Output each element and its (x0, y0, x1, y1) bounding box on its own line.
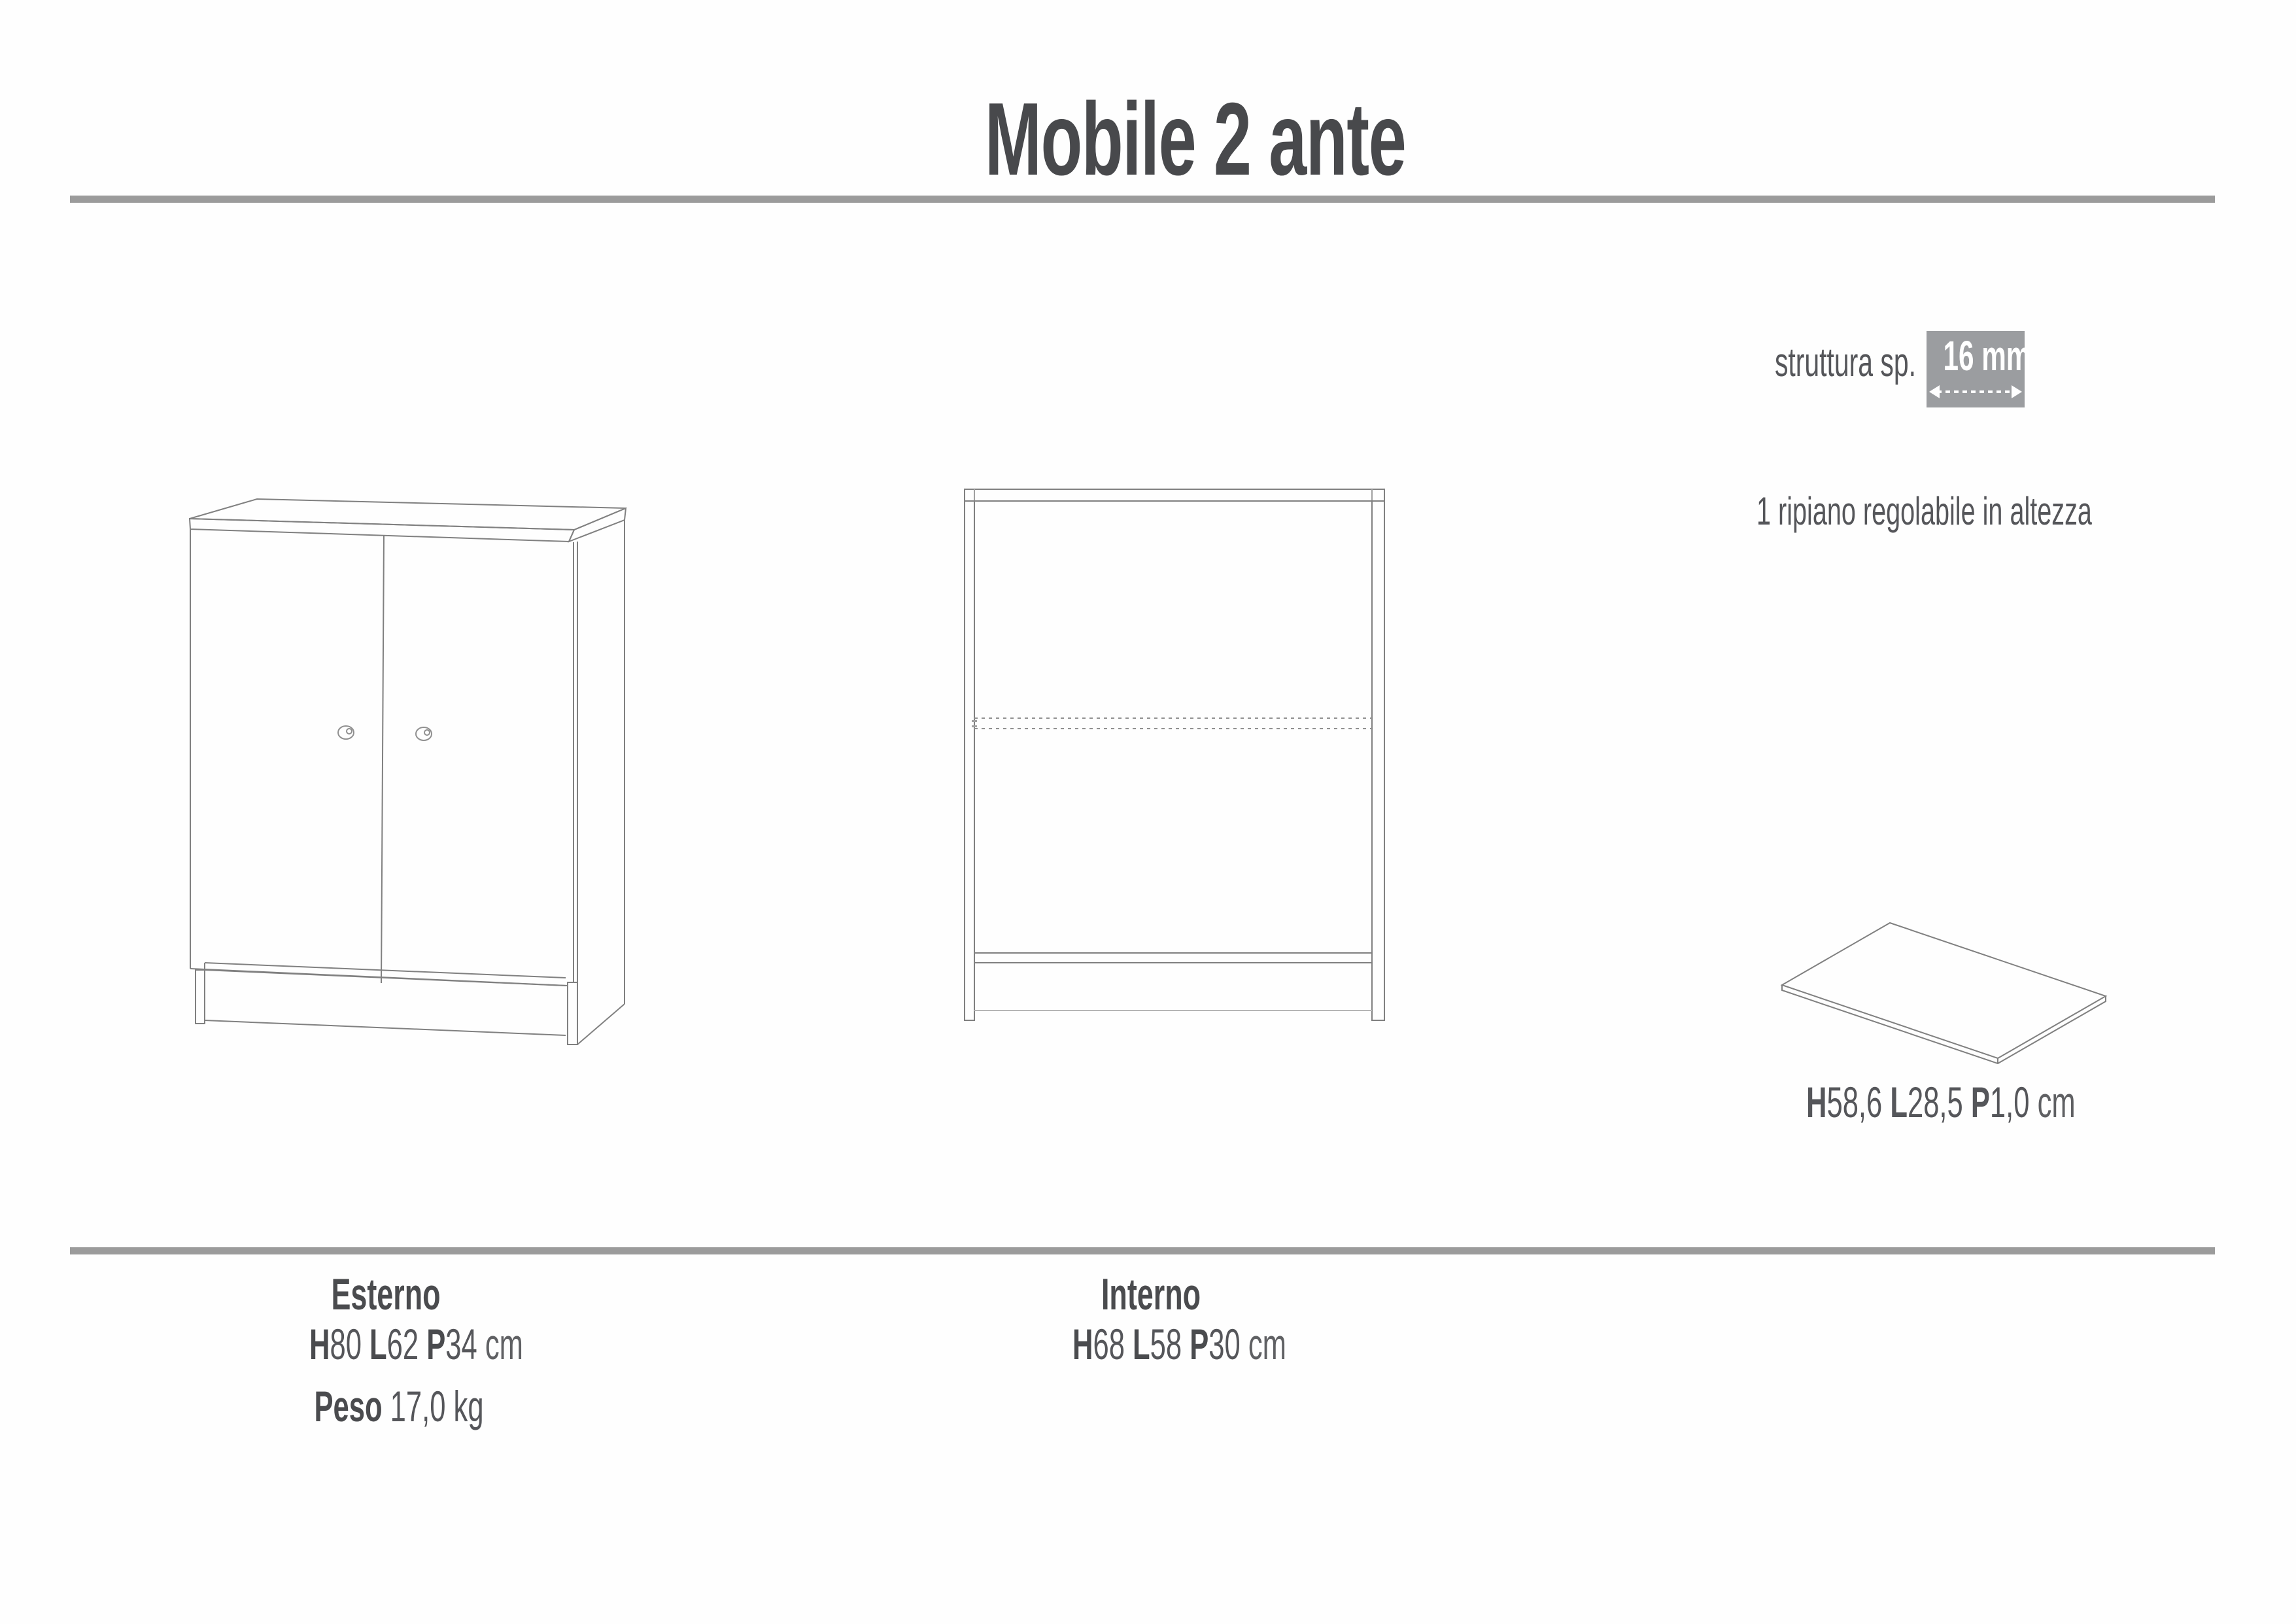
page-title: Mobile 2 ante (985, 88, 1330, 191)
internal-specs-heading: Interno (1065, 1272, 1237, 1317)
structure-thickness-badge: 16 mm (1927, 331, 2025, 407)
structure-thickness-label: struttura sp. (1657, 343, 1916, 383)
cabinet-exterior-drawing (183, 491, 634, 1053)
external-weight: Peso 17,0 kg (313, 1385, 485, 1428)
width-arrow-icon (1927, 381, 2025, 403)
shelf-panel-drawing (1766, 909, 2119, 1073)
internal-dimensions: H68 L58 P30 cm (1072, 1322, 1245, 1366)
spec-sheet-page: Mobile 2 ante struttura sp. 16 mm 1 ripi… (0, 0, 2296, 1624)
top-divider-rule (70, 196, 2215, 203)
external-dimensions: H80 L62 P34 cm (309, 1322, 482, 1366)
adjustable-shelf-note: 1 ripiano regolabile in altezza (1756, 492, 2092, 531)
bottom-divider-rule (70, 1247, 2215, 1254)
shelf-dimensions: H58,6 L28,5 P1,0 cm (1806, 1080, 2065, 1124)
structure-thickness-value: 16 mm (1944, 335, 2008, 377)
cabinet-interior-drawing (955, 484, 1399, 1027)
external-specs-heading: Esterno (300, 1272, 472, 1317)
